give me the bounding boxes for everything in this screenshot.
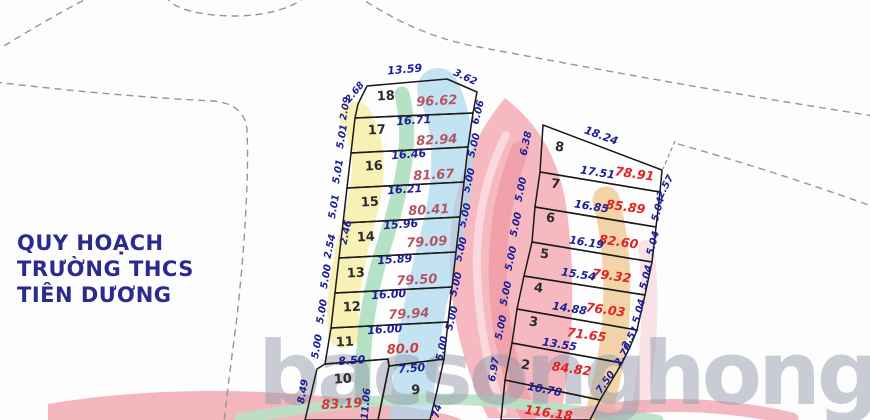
left_block-plots-3-number-label: 15 [360, 195, 379, 211]
left_block-plots-2-dims-bottom-label: 16.21 [387, 182, 423, 197]
left_block-plots-7-dims-bottom_left-label: 8.50 [338, 353, 366, 368]
left_block-plots-2-dims-left-label: 5.01 [331, 158, 346, 184]
left_block-plots-0-number-label: 18 [376, 89, 395, 105]
left_block-plots-9-number-label: 9 [411, 383, 421, 398]
left_block-plots-6-number-label: 12 [342, 300, 361, 316]
left_block-plots-7-area-label: 80.0 [386, 341, 419, 358]
boundary-dash-0 [0, 0, 96, 52]
left_block-plots-6-area-label: 79.94 [388, 306, 430, 323]
plan-title-line2: TRƯỜNG THCS [17, 256, 194, 282]
left_block-plots-5-number-label: 13 [346, 266, 365, 282]
boundary-tie-dash [663, 141, 675, 169]
plan-title-line3: TIÊN DƯƠNG [17, 282, 194, 308]
left_block-plots-3-dims-left-label: 5.01 [327, 193, 342, 219]
left_block-plots-4-dims-bottom-label: 15.89 [377, 252, 413, 267]
left_block-plots-0-area-label: 96.62 [416, 93, 458, 110]
left_block-plots-6-dims-bottom-label: 16.00 [367, 322, 403, 337]
boundary-dash-3 [678, 144, 870, 207]
left_block-plots-8-number-label: 10 [333, 372, 352, 388]
right_block-plots-0-area-label: 78.91 [614, 163, 655, 183]
left_block-plots-0-dims-right-label: 6.06 [470, 99, 487, 126]
left_block-plots-7-dims-bottom_right-label: 7.50 [398, 361, 427, 376]
left_block-plots-0-dims-top-label: 13.59 [387, 61, 423, 77]
planning-map-image: bacsonghong181716151413121110996.6282.94… [0, 0, 870, 420]
right_block-plots-1-dims-right-label: 5.04 [650, 196, 667, 223]
left_block-plots-5-dims-bottom-label: 16.00 [371, 287, 407, 302]
right_block-plots-2-dims-right-label: 5.04 [645, 230, 662, 257]
map-canvas: bacsonghong181716151413121110996.6282.94… [0, 0, 870, 420]
left_block-plots-4-area-label: 79.09 [406, 234, 448, 251]
plan-title-line1: QUY HOẠCH [17, 230, 194, 256]
left_block-plots-0-dims-bottom-label: 16.71 [396, 113, 432, 128]
left_block-plots-7-number-label: 11 [335, 335, 354, 351]
left_block-plots-2-number-label: 16 [364, 159, 383, 175]
left_block-plots-3-dims-bottom-label: 15.96 [383, 217, 419, 232]
left_block-plots-1-dims-left-label: 5.01 [335, 123, 350, 149]
left_block-plots-1-dims-bottom-label: 16.46 [391, 147, 427, 162]
left_block-plots-8-area-label: 83.19 [321, 396, 363, 413]
right_block-plots-0-number-label: 8 [554, 139, 565, 155]
right_block-plots-0-dims-tie-label: 2.57 [655, 173, 676, 200]
boundary-dash-1 [166, 0, 307, 16]
left_block-plots-1-number-label: 17 [367, 123, 386, 139]
plan-title: QUY HOẠCH TRƯỜNG THCS TIÊN DƯƠNG [17, 230, 194, 308]
right_block-plots-0-dims-top-label: 18.24 [583, 124, 620, 148]
left_block-plots-4-number-label: 14 [356, 230, 375, 246]
